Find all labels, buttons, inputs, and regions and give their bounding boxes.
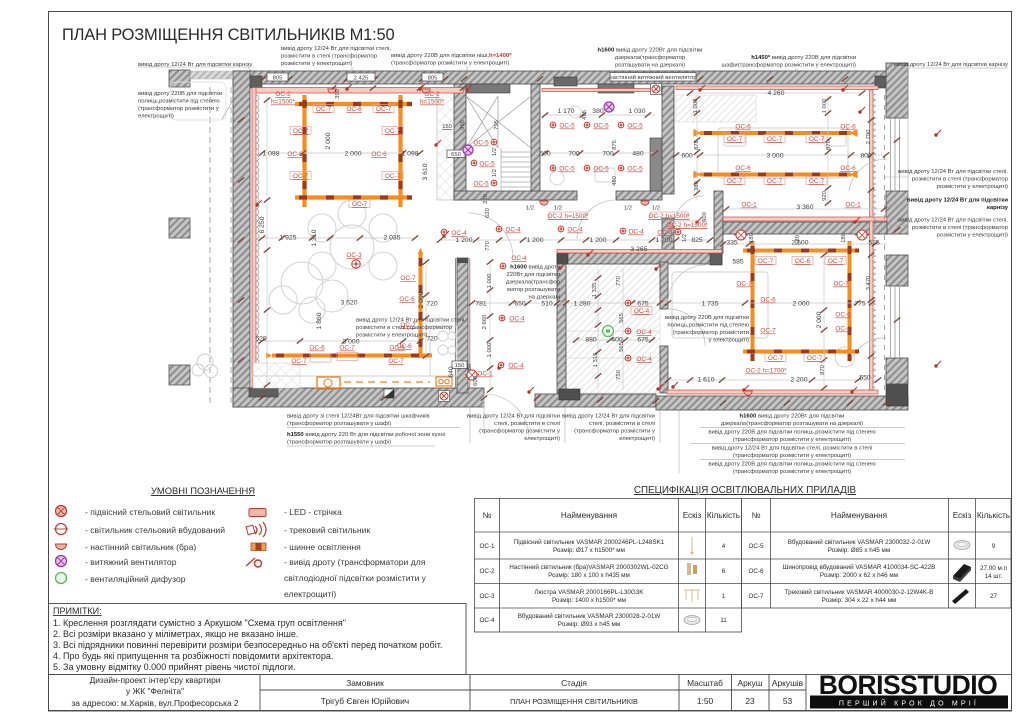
svg-text:ОС-6: ОС-6	[396, 343, 412, 350]
svg-text:700: 700	[568, 151, 580, 158]
svg-text:вивід дроту 12/24 Вт для підсв: вивід дроту 12/24 Вт для підсвітки	[467, 414, 560, 420]
svg-text:ОС-4: ОС-4	[628, 229, 644, 236]
svg-text:ОС-2: ОС-2	[479, 568, 495, 575]
svg-text:1 000: 1 000	[822, 98, 828, 113]
svg-text:ОС-7: ОС-7	[767, 136, 783, 143]
svg-text:1 335: 1 335	[592, 282, 598, 297]
svg-text:вивід дроту 12/24 Вт для підсв: вивід дроту 12/24 Вт для підсвітки	[907, 198, 1008, 204]
svg-text:650: 650	[451, 152, 462, 158]
svg-text:ОС-7: ОС-7	[293, 128, 309, 135]
svg-text:полиць,розмістити під стелею: полиць,розмістити під стелею	[667, 323, 749, 329]
svg-text:ПЕРШИЙ КРОК ДО МРІЇ: ПЕРШИЙ КРОК ДО МРІЇ	[839, 699, 979, 708]
svg-text:380: 380	[694, 180, 700, 191]
svg-text:1:50: 1:50	[697, 696, 714, 706]
svg-text:ОС-7: ОС-7	[835, 326, 851, 333]
svg-text:Найменування: Найменування	[561, 511, 617, 520]
svg-text:ОС-5: ОС-5	[748, 543, 764, 550]
svg-text:50: 50	[467, 363, 473, 370]
svg-text:- настінний світильник (бра): - настінний світильник (бра)	[85, 542, 196, 552]
svg-text:ОС-7: ОС-7	[293, 173, 309, 180]
svg-text:(трансформатор розташувати у ш: (трансформатор розташувати у шафі)	[287, 440, 391, 446]
svg-text:1 925: 1 925	[279, 235, 296, 242]
svg-text:розмістити у електрощиті): розмістити у електрощиті)	[356, 333, 428, 339]
svg-text:3 610: 3 610	[422, 163, 429, 180]
svg-text:дзеркала(трансфор: дзеркала(трансфор	[506, 280, 561, 286]
svg-text:ОС-5: ОС-5	[479, 161, 495, 168]
svg-text:4 260: 4 260	[767, 90, 784, 97]
svg-text:карнізу: карнізу	[987, 205, 1009, 211]
svg-text:ОС-4: ОС-4	[636, 356, 652, 363]
svg-text:ОС-5: ОС-5	[473, 140, 489, 147]
svg-text:ОС-2 h=1500*: ОС-2 h=1500*	[666, 222, 708, 229]
svg-text:ОС-1: ОС-1	[741, 202, 757, 209]
svg-text:ОС-7: ОС-7	[400, 275, 416, 282]
svg-text:ОС-6: ОС-6	[748, 568, 764, 575]
svg-text:870: 870	[820, 364, 826, 375]
svg-text:5. За умовну відмітку 0.000 пр: 5. За умовну відмітку 0.000 прийнят ріве…	[53, 662, 295, 672]
svg-text:ОС-7: ОС-7	[727, 178, 743, 185]
svg-text:380: 380	[592, 108, 604, 115]
svg-text:1 310: 1 310	[311, 229, 318, 246]
svg-text:500: 500	[539, 151, 551, 158]
svg-text:ОС-4: ОС-4	[511, 255, 527, 262]
svg-text:1 030: 1 030	[628, 108, 645, 115]
svg-text:дзеркала(трансформатор: дзеркала(трансформатор	[615, 55, 686, 61]
svg-text:вивід дроту 12/24 Вт для підсв: вивід дроту 12/24 Вт для підсвітки	[562, 414, 655, 420]
svg-text:(трансформатор розмістити у: (трансформатор розмістити у	[138, 106, 219, 112]
svg-text:ОС-7: ОС-7	[736, 281, 752, 288]
svg-text:розмістити в стелі (трансформа: розмістити в стелі (трансформатор	[912, 177, 1009, 183]
svg-text:ОС-6: ОС-6	[309, 345, 325, 352]
svg-text:520: 520	[255, 336, 267, 343]
svg-text:електрощиті): електрощиті)	[138, 114, 174, 120]
svg-text:- LED - стрічка: - LED - стрічка	[284, 507, 342, 517]
svg-text:вивід дроту 220В для підсвітки: вивід дроту 220В для підсвітки	[138, 91, 222, 97]
svg-text:ОС-3: ОС-3	[346, 252, 362, 259]
svg-text:Аркуш: Аркуш	[738, 678, 763, 688]
svg-text:2 035: 2 035	[383, 235, 400, 242]
svg-text:Розмір: Ø93 х h45 мм: Розмір: Ø93 х h45 мм	[558, 620, 620, 628]
svg-text:1 200: 1 200	[655, 237, 672, 244]
svg-text:390: 390	[335, 88, 341, 99]
svg-text:розмістити у електрощиті): розмістити у електрощиті)	[937, 184, 1009, 190]
svg-text:1/2: 1/2	[554, 206, 562, 212]
svg-text:ОС-6: ОС-6	[735, 124, 751, 131]
svg-text:ОС-7: ОС-7	[388, 358, 404, 365]
svg-text:920: 920	[822, 190, 828, 201]
svg-text:настінний витяжний вентилятор: настінний витяжний вентилятор	[609, 74, 697, 81]
svg-text:Розмір: 2000 х 62 х h46 мм: Розмір: 2000 х 62 х h46 мм	[820, 571, 898, 579]
svg-text:- вивід дроту (трансформатори: - вивід дроту (трансформатори для	[284, 557, 426, 567]
svg-text:ОС-4: ОС-4	[509, 316, 525, 323]
svg-text:ОС-7: ОС-7	[339, 345, 355, 352]
svg-text:ОС-4: ОС-4	[634, 308, 650, 315]
svg-text:510: 510	[541, 301, 553, 308]
svg-text:УМОВНІ ПОЗНАЧЕННЯ: УМОВНІ ПОЗНАЧЕННЯ	[151, 485, 255, 496]
svg-text:- підвісний стельовий світильн: - підвісний стельовий світильник	[85, 507, 215, 517]
svg-text:1/2: 1/2	[526, 206, 534, 212]
svg-text:1 315: 1 315	[593, 352, 599, 367]
svg-text:- трековий світильник: - трековий світильник	[284, 525, 370, 535]
svg-text:розмістити в стелі (трансформа: розмістити в стелі (трансформатор	[912, 225, 1009, 231]
svg-text:на дзеркалі: на дзеркалі	[528, 295, 560, 301]
svg-text:ОС-6: ОС-6	[399, 296, 415, 303]
svg-text:805: 805	[428, 76, 439, 82]
svg-text:h1600 вивід дроту: h1600 вивід дроту	[510, 265, 560, 271]
svg-text:шафи(трансформатор розмістити: шафи(трансформатор розмістити у електрощ…	[722, 63, 856, 69]
svg-text:ОС-6: ОС-6	[287, 151, 303, 158]
svg-text:180: 180	[749, 232, 755, 243]
svg-text:775: 775	[854, 301, 866, 308]
svg-text:2 000: 2 000	[344, 151, 361, 158]
svg-text:розмістити в стелі (трансформа: розмістити в стелі (трансформатор	[281, 54, 378, 60]
svg-text:ОС-4: ОС-4	[657, 230, 673, 237]
svg-text:770: 770	[616, 275, 622, 286]
svg-text:СПЕЦИФІКАЦІЯ ОСВІТЛЮВАЛЬНИХ ПР: СПЕЦИФІКАЦІЯ ОСВІТЛЮВАЛЬНИХ ПРИЛАДІВ	[634, 485, 857, 496]
svg-text:вивід дроту 220В для підсвітки: вивід дроту 220В для підсвітки ніші,h=14…	[391, 53, 512, 59]
svg-text:2 000: 2 000	[816, 311, 823, 328]
svg-text:електрощиті): електрощиті)	[284, 589, 336, 599]
svg-text:№: №	[752, 511, 761, 520]
svg-text:- світильник стельовий вбудова: - світильник стельовий вбудований	[85, 525, 225, 535]
svg-text:ОС-4: ОС-4	[505, 227, 521, 234]
svg-text:вивід дроту 12/24 Вт для підсв: вивід дроту 12/24 Вт для підсвітки стелі…	[281, 46, 391, 52]
svg-text:ПЛАН РОЗМІЩЕННЯ СВІТИЛЬНИКІВ: ПЛАН РОЗМІЩЕННЯ СВІТИЛЬНИКІВ	[510, 697, 638, 706]
svg-text:ОС-6: ОС-6	[371, 151, 387, 158]
svg-text:1 280: 1 280	[573, 301, 590, 308]
svg-text:світлодіодної підсвітки розміс: світлодіодної підсвітки розмістити у	[284, 573, 427, 583]
svg-text:ОС-7: ОС-7	[767, 178, 783, 185]
svg-text:700: 700	[602, 151, 614, 158]
svg-text:Настінний світильник (бра)VASM: Настінний світильник (бра)VASMAR 2000302…	[509, 563, 668, 571]
svg-text:розмістити в стелі (трансформа: розмістити в стелі (трансформатор	[356, 325, 453, 331]
svg-text:Ескіз: Ескіз	[683, 511, 702, 520]
svg-text:2 000: 2 000	[418, 291, 425, 308]
svg-text:ОС-7: ОС-7	[807, 355, 823, 362]
svg-text:770: 770	[485, 240, 491, 251]
svg-text:(трансформатор розмістити у ел: (трансформатор розмістити у електрощиті)	[733, 453, 851, 459]
svg-text:ОС-7: ОС-7	[760, 328, 776, 335]
svg-text:Люстра VASMAR 2000166PL-L30G3K: Люстра VASMAR 2000166PL-L30G3K	[535, 589, 645, 596]
svg-text:ОС-5: ОС-5	[559, 123, 575, 130]
svg-text:1 610: 1 610	[697, 377, 714, 384]
svg-text:ОС-4: ОС-4	[451, 230, 467, 237]
svg-text:870: 870	[826, 139, 832, 150]
svg-text:ОС-3: ОС-3	[479, 593, 495, 600]
svg-text:Шинопровід вбудований VASMAR 4: Шинопровід вбудований VASMAR 4100034-SC-…	[783, 563, 936, 571]
svg-text:розмістити у електрощиті): розмістити у електрощиті)	[281, 61, 353, 67]
svg-text:у ЖК "Фелніта": у ЖК "Фелніта"	[126, 686, 184, 696]
svg-text:вивід дроту 220В для підсвітки: вивід дроту 220В для підсвітки	[665, 315, 749, 321]
svg-text:2 000: 2 000	[325, 132, 332, 149]
svg-text:565: 565	[619, 312, 625, 323]
svg-text:за адресою: м.Харків, вул.Проф: за адресою: м.Харків, вул.Професорська 2	[71, 698, 239, 708]
svg-text:3 470: 3 470	[866, 275, 872, 290]
svg-text:480: 480	[612, 175, 618, 186]
svg-text:23: 23	[745, 696, 755, 706]
svg-text:h1600 вивід дроту 220Вт для пі: h1600 вивід дроту 220Вт для підсвітки	[740, 414, 845, 420]
svg-text:ОС-6: ОС-6	[760, 297, 776, 304]
svg-text:995: 995	[460, 119, 466, 130]
svg-text:ОС-5: ОС-5	[593, 123, 609, 130]
svg-text:ОС-5: ОС-5	[559, 166, 575, 173]
svg-text:(трансформатор розмістити у ел: (трансформатор розмістити у електрощиті)	[733, 437, 851, 443]
svg-text:ОС-6: ОС-6	[795, 258, 811, 265]
svg-text:525: 525	[868, 240, 880, 247]
svg-text:2 200: 2 200	[790, 377, 807, 384]
svg-text:870: 870	[694, 139, 700, 150]
svg-text:3. Всі підрядники повинні пере: 3. Всі підрядники повинні перевірити роз…	[53, 640, 442, 650]
svg-text:стелі, розмістити в стелі: стелі, розмістити в стелі	[494, 421, 560, 427]
svg-text:1 000: 1 000	[693, 98, 699, 113]
svg-text:ОС-2 h=1500*: ОС-2 h=1500*	[648, 213, 690, 220]
svg-text:2 660: 2 660	[482, 314, 488, 329]
svg-text:Розмір: Ø17 х h1500* мм: Розмір: Ø17 х h1500* мм	[553, 546, 625, 554]
svg-text:Дизайн-проект інтер'єру кварти: Дизайн-проект інтер'єру квартири	[90, 675, 221, 685]
svg-text:ОС-4: ОС-4	[508, 363, 524, 370]
svg-text:650: 650	[514, 301, 526, 308]
svg-text:ОС-4: ОС-4	[479, 617, 495, 624]
svg-text:- шинне освітлення: - шинне освітлення	[284, 542, 361, 552]
svg-text:Підвісний світильник VASMAR 20: Підвісний світильник VASMAR 2000246PL-L2…	[514, 538, 665, 546]
svg-text:1 000: 1 000	[487, 273, 493, 288]
svg-text:Розмір: Ø85 х h45 мм: Розмір: Ø85 х h45 мм	[828, 546, 890, 554]
svg-text:1 860: 1 860	[316, 312, 323, 329]
svg-text:53: 53	[783, 696, 793, 706]
svg-text:ОС-7: ОС-7	[316, 106, 332, 113]
svg-text:ОС-7: ОС-7	[385, 128, 401, 135]
svg-text:Кількість: Кількість	[707, 511, 740, 520]
svg-text:1/2: 1/2	[492, 148, 498, 156]
svg-text:795: 795	[494, 119, 500, 130]
svg-text:ПЛАН РОЗМІЩЕННЯ СВІТИЛЬНИКІВ М: ПЛАН РОЗМІЩЕННЯ СВІТИЛЬНИКІВ М1:50	[62, 26, 395, 44]
svg-text:ОС-5: ОС-5	[593, 166, 609, 173]
svg-text:ОС-6: ОС-6	[835, 312, 851, 319]
svg-text:2 425: 2 425	[354, 76, 369, 82]
svg-text:Аркушів: Аркушів	[772, 678, 804, 688]
svg-text:ОС-6: ОС-6	[840, 124, 856, 131]
svg-text:2 790: 2 790	[866, 129, 872, 144]
svg-text:ОС-1: ОС-1	[477, 371, 493, 378]
svg-text:800: 800	[860, 153, 872, 160]
svg-text:вивід дроту зі стелі 12/24Вт д: вивід дроту зі стелі 12/24Вт для підсвіт…	[287, 414, 430, 420]
svg-text:(трансформатор розмістити у ел: (трансформатор розмістити у електрощиті)	[733, 469, 851, 475]
svg-text:ОС-5: ОС-5	[627, 166, 643, 173]
svg-text:ОС-5: ОС-5	[627, 123, 643, 130]
svg-text:Трігуб Євген Юрійович: Трігуб Євген Юрійович	[321, 696, 409, 706]
svg-text:3 265: 3 265	[630, 246, 647, 253]
svg-text:h1550 вивід дроту 220 Вт для п: h1550 вивід дроту 220 Вт для підсвітки р…	[287, 432, 445, 438]
svg-text:640: 640	[448, 366, 455, 378]
svg-text:вивід дроту 12/24 Вт для підсв: вивід дроту 12/24 Вт для підсвітки стелі…	[898, 169, 1008, 175]
svg-text:дзеркала(трансформатор розташу: дзеркала(трансформатор розташувати на дз…	[721, 421, 863, 427]
svg-text:9: 9	[992, 543, 996, 550]
svg-text:11: 11	[720, 617, 727, 624]
svg-text:335: 335	[726, 240, 738, 247]
svg-text:Масштаб: Масштаб	[687, 678, 723, 688]
svg-text:1/2: 1/2	[652, 206, 660, 212]
svg-text:2 000: 2 000	[792, 301, 809, 308]
svg-text:ОС-7: ОС-7	[758, 258, 774, 265]
svg-text:(трансформатор розмістити: (трансформатор розмістити	[673, 330, 749, 336]
svg-text:ОС-1: ОС-1	[845, 202, 861, 209]
svg-text:1 200: 1 200	[526, 237, 543, 244]
svg-text:675: 675	[637, 337, 649, 344]
svg-text:Стадія: Стадія	[561, 678, 587, 688]
svg-text:Розмір: 1400 х h1500* мм: Розмір: 1400 х h1500* мм	[552, 596, 626, 604]
svg-text:565: 565	[619, 341, 625, 352]
svg-text:ОС-5: ОС-5	[473, 181, 489, 188]
svg-text:Розмір: 180 х 100 х h435 мм: Розмір: 180 х 100 х h435 мм	[548, 571, 630, 579]
svg-text:825: 825	[691, 237, 703, 244]
svg-text:ОС-7: ОС-7	[809, 136, 825, 143]
svg-text:6: 6	[722, 568, 726, 575]
svg-text:1: 1	[722, 593, 726, 600]
svg-text:2. Всі розміри вказано у мілім: 2. Всі розміри вказано у міліметрах, якщ…	[53, 629, 298, 639]
svg-text:ОС-7: ОС-7	[809, 178, 825, 185]
svg-text:ОС-1: ОС-1	[479, 543, 495, 550]
svg-text:вивід дроту 220В для підсвітки: вивід дроту 220В для підсвітки полиць,ро…	[708, 430, 876, 436]
svg-text:150: 150	[455, 363, 466, 369]
svg-text:ОС-7: ОС-7	[727, 136, 743, 143]
svg-text:Трековий світильник VASMAR 400: Трековий світильник VASMAR 4000030-2-12W…	[785, 588, 934, 596]
svg-text:вивід дроту 12/24 Вт для підсв: вивід дроту 12/24 Вт для підсвітки стелі…	[712, 446, 873, 452]
svg-text:h=1500*: h=1500*	[271, 99, 296, 106]
svg-text:h1600 вивід дроту 220Вт для пі: h1600 вивід дроту 220Вт для підсвітки	[598, 48, 703, 54]
svg-text:(трансформатор розташувати у ш: (трансформатор розташувати у шафі)	[287, 421, 391, 427]
svg-text:720: 720	[426, 336, 438, 343]
svg-text:495: 495	[582, 109, 588, 120]
svg-text:1 200: 1 200	[589, 237, 606, 244]
svg-text:6 250: 6 250	[259, 216, 266, 233]
svg-text:ОС-6: ОС-6	[840, 165, 856, 172]
svg-text:ОС-6: ОС-6	[735, 165, 751, 172]
svg-text:180: 180	[841, 232, 847, 243]
svg-text:14 шт.: 14 шт.	[985, 573, 1003, 580]
svg-text:(трансформатор розмістити у: (трансформатор розмістити у	[479, 429, 560, 435]
svg-text:4. Про будь які припущення та: 4. Про будь які припущення та розбіжност…	[53, 651, 333, 661]
svg-text:Замовник: Замовник	[346, 678, 384, 688]
svg-text:стелі, розмістити в стелі: стелі, розмістити в стелі	[589, 421, 655, 427]
svg-text:Вбудований світильник VASMAR 2: Вбудований світильник VASMAR 2300028-2-0…	[518, 612, 661, 620]
svg-text:1/2: 1/2	[492, 169, 498, 177]
svg-text:1 735: 1 735	[701, 301, 718, 308]
svg-text:h=1500*: h=1500*	[420, 99, 445, 106]
svg-text:805: 805	[273, 76, 284, 82]
svg-text:полиць,розмістити під стелею: полиць,розмістити під стелею	[138, 99, 220, 105]
svg-text:Вбудований світильник VASMAR 2: Вбудований світильник VASMAR 2300032-2-0…	[788, 538, 931, 546]
svg-text:27: 27	[990, 593, 998, 600]
svg-text:1/2: 1/2	[682, 234, 688, 242]
svg-text:(трансформатор розмістити у: (трансформатор розмістити у	[574, 429, 655, 435]
svg-text:вивід дроту 12/24 Вт для підсв: вивід дроту 12/24 Вт для підсвітки карні…	[894, 62, 1008, 68]
svg-text:- витяжний вентилятор: - витяжний вентилятор	[85, 557, 177, 567]
svg-text:ОС-4: ОС-4	[567, 227, 583, 234]
svg-text:220Вт для підсвітки: 220Вт для підсвітки	[507, 272, 560, 278]
svg-text:- вентиляційний дифузор: - вентиляційний дифузор	[85, 574, 186, 584]
svg-text:ОС-7: ОС-7	[748, 593, 764, 600]
svg-text:1 200: 1 200	[455, 237, 472, 244]
svg-text:(трансформатор розмістити у ел: (трансформатор розмістити у електрощиті)	[391, 61, 509, 67]
svg-text:h1450* вивід дроту 220В для пі: h1450* вивід дроту 220В для підсвітки	[751, 55, 856, 61]
svg-text:1 098: 1 098	[262, 151, 279, 158]
svg-text:620: 620	[485, 207, 491, 218]
svg-text:3 000: 3 000	[766, 153, 783, 160]
svg-text:1/2: 1/2	[624, 206, 632, 212]
svg-text:ОС-6: ОС-6	[346, 106, 362, 113]
svg-text:ОС-2 h=1500*: ОС-2 h=1500*	[547, 213, 589, 220]
svg-text:вивід дроту 220В для підсвітки: вивід дроту 220В для підсвітки полиць,ро…	[708, 462, 876, 468]
svg-text:3 520: 3 520	[340, 300, 357, 307]
svg-text:4: 4	[722, 543, 726, 550]
svg-text:1 170: 1 170	[557, 108, 574, 115]
svg-text:1 000: 1 000	[487, 342, 493, 357]
svg-text:ОС-7: ОС-7	[352, 201, 368, 208]
svg-text:720: 720	[426, 301, 438, 308]
svg-text:ПРИМІТКИ:: ПРИМІТКИ:	[53, 606, 102, 616]
svg-text:ОС-7: ОС-7	[385, 173, 401, 180]
svg-text:електрощиті): електрощиті)	[619, 436, 655, 442]
svg-text:585: 585	[732, 259, 744, 266]
svg-text:550: 550	[859, 375, 871, 382]
svg-text:1. Креслення розглядати суміст: 1. Креслення розглядати сумістно з Аркуш…	[53, 618, 346, 628]
svg-text:750: 750	[616, 369, 622, 380]
svg-text:ОС-7: ОС-7	[768, 355, 784, 362]
svg-text:у електрощиті): у електрощиті)	[709, 338, 749, 344]
svg-text:27.00 м.п: 27.00 м.п	[980, 565, 1007, 572]
svg-text:електрощиті): електрощиті)	[524, 436, 560, 442]
svg-text:розмістити у електрощиті): розмістити у електрощиті)	[937, 233, 1009, 239]
svg-text:№: №	[483, 511, 492, 520]
svg-text:ОС-4: ОС-4	[636, 329, 652, 336]
svg-text:вивід дроту 12/24 Вт для підсв: вивід дроту 12/24 Вт для підсвітки стелі…	[356, 318, 466, 324]
svg-text:ОС-7: ОС-7	[291, 358, 307, 365]
svg-text:розташувати на дзеркалі): розташувати на дзеркалі)	[615, 63, 685, 69]
svg-text:781: 781	[475, 301, 487, 308]
svg-text:Ескіз: Ескіз	[953, 511, 972, 520]
svg-text:Кількість: Кількість	[977, 511, 1010, 520]
svg-text:480: 480	[632, 151, 644, 158]
svg-text:ОС-2: ОС-2	[424, 91, 440, 98]
svg-text:580: 580	[795, 234, 801, 245]
svg-text:3 360: 3 360	[796, 204, 813, 211]
svg-text:Найменування: Найменування	[831, 511, 887, 520]
svg-text:Розмір: 304 х 22 х h44 мм: Розмір: 304 х 22 х h44 мм	[822, 596, 897, 604]
svg-text:875: 875	[612, 139, 618, 150]
svg-text:880: 880	[585, 337, 597, 344]
svg-text:ОС-7: ОС-7	[376, 106, 392, 113]
svg-text:600: 600	[681, 153, 693, 160]
svg-text:230: 230	[483, 193, 489, 204]
svg-text:ОС-2 h=1700*: ОС-2 h=1700*	[745, 368, 787, 375]
svg-text:ОС-7: ОС-7	[828, 258, 844, 265]
svg-text:вивід дроту 12/24 Вт для підсв: вивід дроту 12/24 Вт для підсвітки стелі…	[898, 218, 1008, 224]
svg-text:600: 600	[702, 211, 708, 222]
svg-text:1 098: 1 098	[401, 151, 418, 158]
svg-text:150: 150	[442, 124, 453, 130]
svg-text:ОС-2: ОС-2	[275, 91, 291, 98]
svg-text:матор розташувати: матор розташувати	[507, 287, 560, 293]
svg-text:ОС-7: ОС-7	[833, 281, 849, 288]
